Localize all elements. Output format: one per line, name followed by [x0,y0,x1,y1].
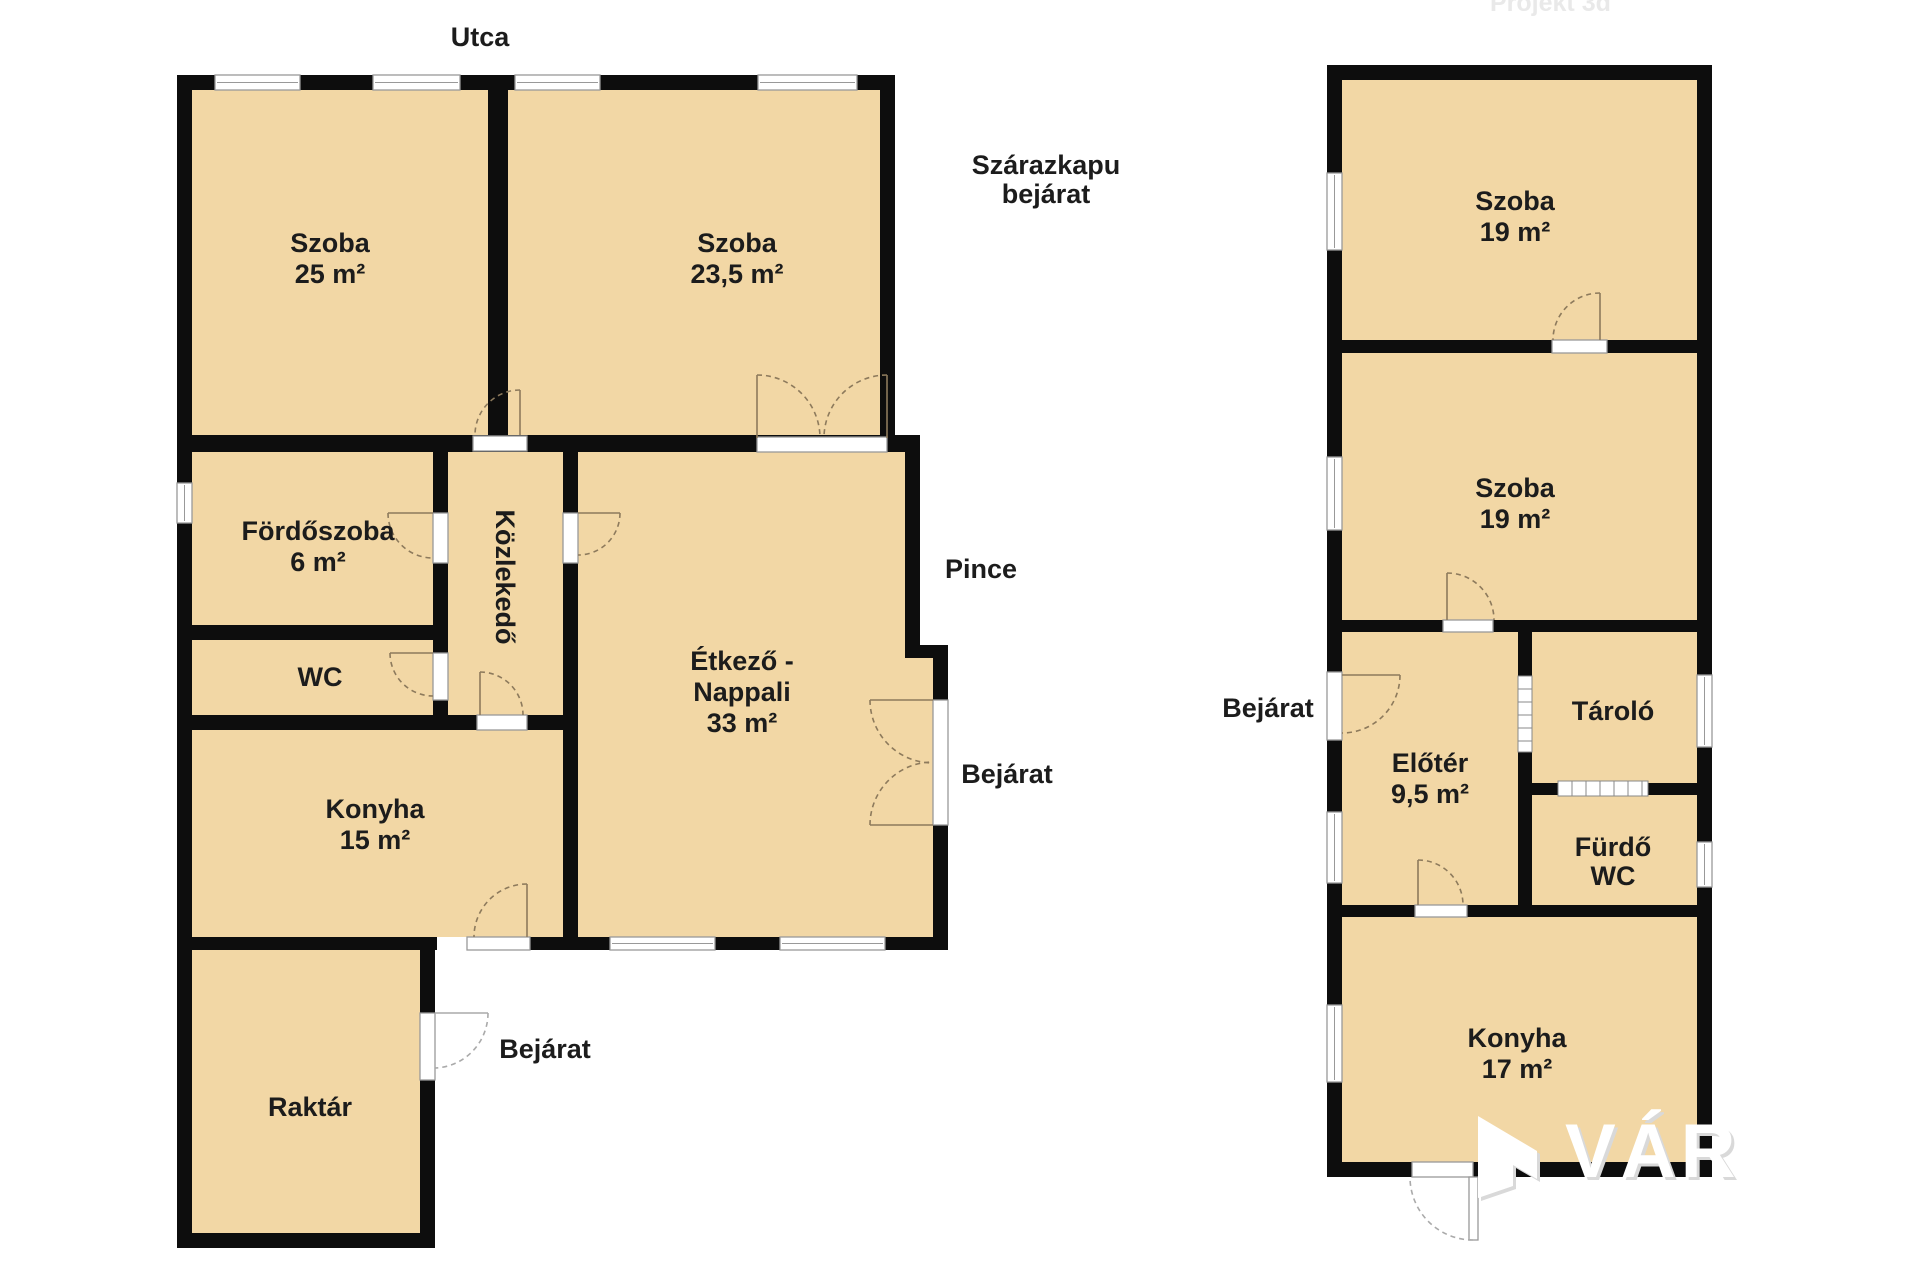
room-label-szoba2: Szoba [697,228,777,258]
wall [1342,340,1697,353]
wall [177,937,437,950]
room-label-r-szoba1: Szoba [1475,186,1555,216]
room-label-fordoszoba: Fördőszoba [242,516,396,546]
room-label-furdo-2: WC [1591,861,1636,891]
brand-watermark: VÁR [1565,1109,1740,1194]
wall [1327,65,1712,80]
room-label-raktar: Raktár [268,1092,353,1122]
label-szarazkapu-2: bejárat [1002,179,1091,209]
room-area-konyha: 15 m² [340,825,411,855]
room-label-wc: WC [298,662,343,692]
room-label-szoba1: Szoba [290,228,370,258]
left-building: Szoba 25 m² Szoba 23,5 m² Fördőszoba 6 m… [177,22,1120,1248]
door-arc [435,1013,488,1068]
wall [1697,65,1712,1177]
floorplan-page: Szoba 25 m² Szoba 23,5 m² Fördőszoba 6 m… [0,0,1920,1280]
room-area-r-konyha: 17 m² [1482,1054,1553,1084]
wall [177,75,192,1248]
label-szarazkapu-1: Szárazkapu [972,150,1121,180]
room-area-r-szoba2: 19 m² [1480,504,1551,534]
wall [488,90,508,452]
door-sill [473,436,527,451]
room-label-r-szoba2: Szoba [1475,473,1555,503]
door-sill [1415,905,1467,917]
floorplan-canvas: Szoba 25 m² Szoba 23,5 m² Fördőszoba 6 m… [0,0,1920,1280]
room-area-szoba2: 23,5 m² [690,259,783,289]
wall [192,625,448,640]
door-sill [933,700,948,825]
right-building-outside-labels: Bejárat [1222,693,1314,723]
label-bejarat-right: Bejárat [1222,693,1314,723]
label-bejarat-raktar: Bejárat [499,1034,591,1064]
door-sill [477,715,527,730]
wall [420,950,435,1248]
label-bejarat-etkezo: Bejárat [961,759,1053,789]
door-sill [433,653,448,700]
wall [1342,905,1697,917]
door-sill [1412,1162,1473,1177]
room-label-etkezo-2: Nappali [693,677,791,707]
room-label-konyha: Konyha [325,794,425,824]
room-label-furdo-1: Fürdő [1575,832,1651,862]
wall [1518,632,1532,905]
door-sill [757,437,887,452]
wall [177,1233,435,1248]
door-sill [420,1013,435,1080]
door-sill [563,513,578,563]
door-sill [1443,620,1493,632]
room-label-r-konyha: Konyha [1467,1023,1567,1053]
wall [905,438,920,658]
watermark-top-right: Projekt 3d [1490,0,1611,17]
room-area-fordoszoba: 6 m² [290,547,346,577]
door-arc [1410,1177,1473,1240]
door-leaf-closed [1469,1177,1478,1240]
room-label-etkezo-1: Étkező - [690,645,794,676]
right-building: Szoba 19 m² Szoba 19 m² Előtér 9,5 m² Tá… [1222,65,1712,1240]
wall [1342,620,1697,632]
room-label-tarolo: Tároló [1572,696,1655,726]
room-area-etkezo: 33 m² [707,708,778,738]
threshold-gap [437,937,467,950]
door-sill [467,937,530,950]
room-label-eloter: Előtér [1392,748,1469,778]
door-sill [1552,340,1607,353]
room-area-r-szoba1: 19 m² [1480,217,1551,247]
label-utca: Utca [451,22,511,52]
room-label-kozlekedo: Közlekedő [490,509,520,644]
door-sill [433,513,448,563]
room-area-szoba1: 25 m² [295,259,366,289]
door-sill [1327,672,1342,740]
room-area-eloter: 9,5 m² [1391,779,1469,809]
label-pince: Pince [945,554,1017,584]
